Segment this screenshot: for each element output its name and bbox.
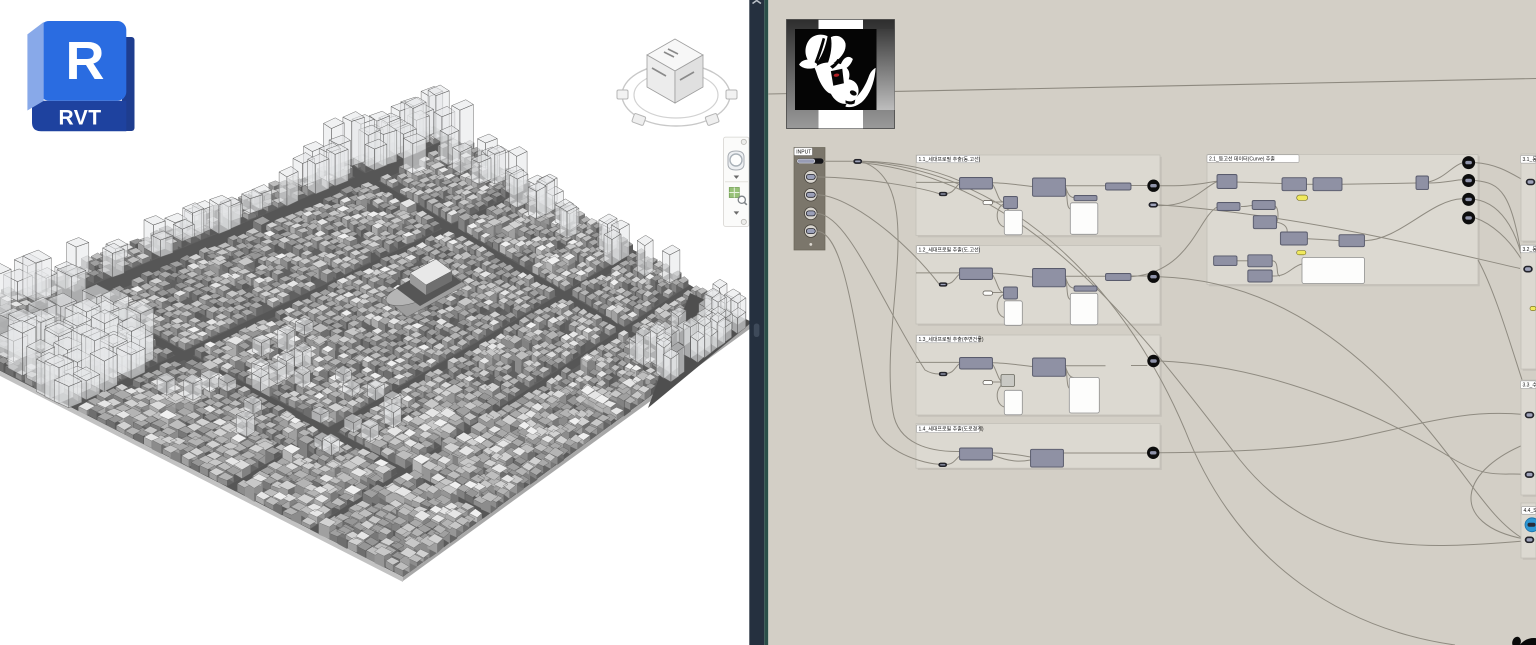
svg-text:INPUT: INPUT [796, 149, 811, 155]
svg-text:1.2_세대프로필 추출(도.고선): 1.2_세대프로필 추출(도.고선) [919, 246, 981, 253]
svg-text:RVT: RVT [58, 107, 101, 130]
svg-text:2.1_등고선 데이터(Curve) 추출: 2.1_등고선 데이터(Curve) 추출 [1209, 155, 1275, 162]
svg-text:R: R [66, 31, 105, 91]
svg-text:3.1_동: 3.1_동 [1523, 157, 1536, 163]
svg-text:4.4_S: 4.4_S [1524, 508, 1536, 514]
svg-text:1.1_세대프로필 추출(동.고선): 1.1_세대프로필 추출(동.고선) [919, 156, 981, 163]
svg-text:1.3_세대프로필 추출(주변건물): 1.3_세대프로필 추출(주변건물) [919, 336, 984, 343]
svg-text:3.2_동: 3.2_동 [1523, 247, 1536, 253]
svg-text:3.3_수: 3.3_수 [1523, 383, 1536, 389]
svg-text:1.4_세대프로필 추출(도로경계): 1.4_세대프로필 추출(도로경계) [919, 426, 984, 433]
